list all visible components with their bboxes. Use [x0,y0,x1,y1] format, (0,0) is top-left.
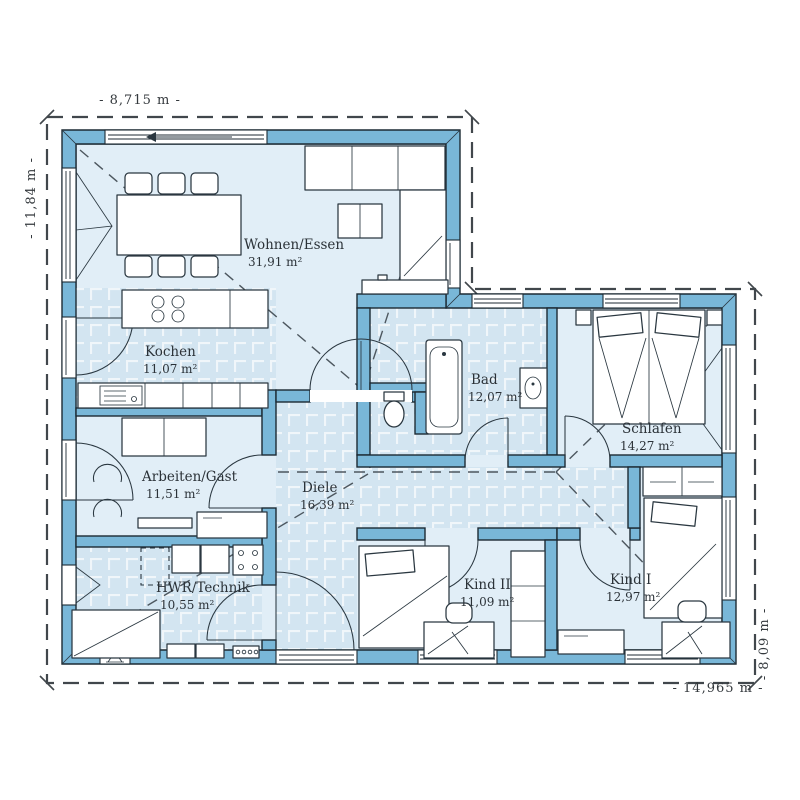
room-name: Wohnen/Essen [244,237,344,253]
child1-sideboard [558,630,624,654]
room-area: 31,91 m² [248,255,303,269]
child2-desk [424,622,494,658]
room-name: Kind II [464,577,511,593]
room-name: Kochen [145,344,196,360]
dimension-right: - 8,09 m - [757,608,772,680]
double-bed [576,310,722,424]
floorplan-page: Wohnen/Essen 31,91 m² Kochen 11,07 m² Ar… [0,0,800,800]
kitchen-counter [78,383,268,408]
room-area: 12,97 m² [606,590,661,604]
guest-bed [122,418,206,456]
hall-closet [643,467,722,496]
room-area: 10,55 m² [160,598,215,612]
room-name: Diele [302,480,337,496]
bathtub [426,340,462,434]
room-area: 11,07 m² [143,362,198,376]
bath-top-window [472,294,523,308]
room-name: Kind I [610,572,651,588]
room-area: 16,39 m² [300,498,355,512]
floorplan-drawing: Wohnen/Essen 31,91 m² Kochen 11,07 m² Ar… [0,0,800,800]
dimension-top: - 8,715 m - [99,93,181,108]
room-name: Schlafen [622,421,682,437]
child1-desk [662,622,730,658]
room-name: Bad [471,372,498,388]
room-name: Arbeiten/Gast [141,469,238,485]
child1-chair [678,601,706,622]
living-top-window [105,130,267,144]
kitchen-island [122,290,268,328]
room-area: 11,09 m² [460,595,515,609]
room-name: HWR/Technik [156,580,251,596]
dimension-bottom: - 14,965 m - [673,681,764,696]
room-area: 12,07 m² [468,390,523,404]
room-area: 11,51 m² [146,487,201,501]
bedroom-top-window [603,294,680,308]
child2-wardrobe [511,551,545,657]
washbasin [520,368,547,408]
dimension-left: - 11,84 m - [24,157,39,239]
toilet [384,392,404,427]
room-area: 14,27 m² [620,439,675,453]
